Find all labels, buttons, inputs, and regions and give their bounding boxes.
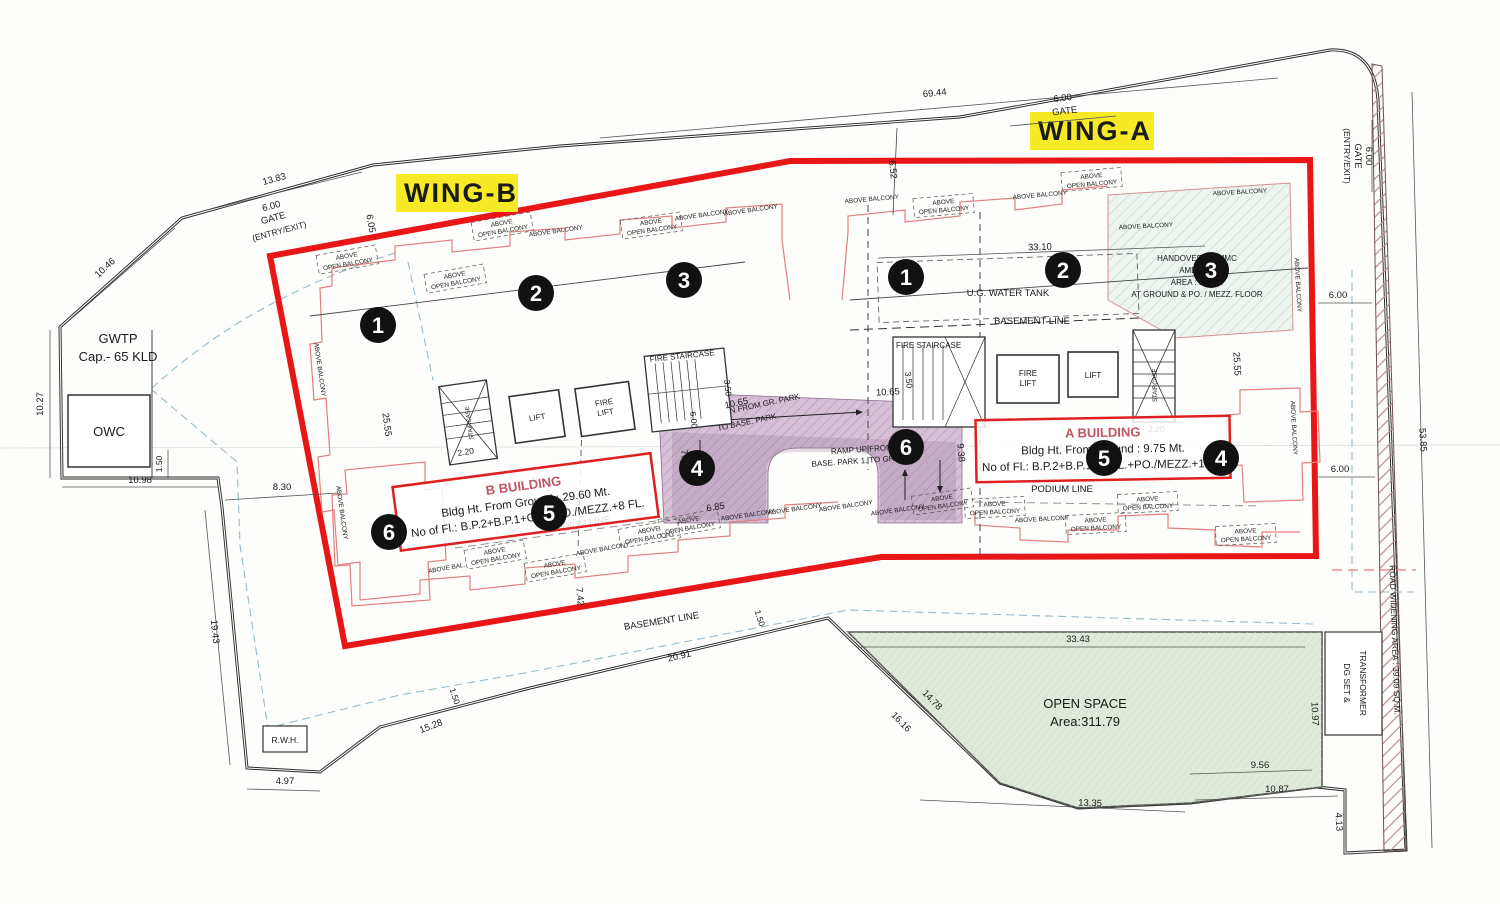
- svg-text:OPEN BALCONY: OPEN BALCONY: [1221, 535, 1272, 545]
- svg-text:ABOVE BALCONY: ABOVE BALCONY: [312, 342, 327, 398]
- wing-a-label: WING-A: [1030, 112, 1154, 150]
- svg-text:6: 6: [900, 435, 912, 460]
- a-building-title: A BUILDING: [1065, 424, 1141, 440]
- balcony-label: ABOVEOPEN BALCONY: [316, 245, 378, 274]
- site-plan: ROAD WIDENING AREA : 39.09 SQ.M. OPEN SP…: [0, 0, 1500, 904]
- svg-text:5: 5: [1098, 446, 1110, 471]
- balcony-label: ABOVEOPEN BALCONY: [964, 496, 1025, 518]
- svg-text:3: 3: [1205, 258, 1217, 283]
- handover-line4: AT GROUND & PO. / MEZZ. FLOOR: [1131, 290, 1262, 299]
- dim-8-30: 8.30: [273, 482, 292, 493]
- dim-53-85: 53.85: [1416, 428, 1428, 452]
- basement-line-label-a: BASEMENT LINE: [994, 316, 1070, 327]
- dim-1-50-b: 1.50: [753, 609, 768, 628]
- marker-b-1: 1: [360, 307, 396, 343]
- svg-text:ABOVE: ABOVE: [1084, 516, 1106, 524]
- dim-7-70: 7.70: [678, 449, 691, 469]
- svg-text:OPEN BALCONY: OPEN BALCONY: [1123, 503, 1174, 513]
- podium-line-label-a: PODIUM LINE: [1031, 484, 1093, 495]
- dim-10-65-right: 10.65: [876, 386, 900, 398]
- svg-text:3: 3: [678, 268, 690, 293]
- svg-text:ABOVE BALCONY: ABOVE BALCONY: [1293, 258, 1303, 313]
- marker-a-5: 5: [1086, 440, 1122, 476]
- dim-10-27: 10.27: [35, 392, 46, 416]
- marker-b-2: 2: [518, 275, 554, 311]
- open-space-area-value: Area:311.79: [1050, 714, 1120, 729]
- lift-wing-a: LIFT: [1068, 352, 1118, 397]
- balcony-label: ABOVE BALCONY: [575, 541, 630, 557]
- gwtp-capacity: Cap.- 65 KLD: [79, 349, 158, 364]
- fire-lift-wing-b: FIRE LIFT: [575, 381, 635, 436]
- dim-20-91: 20.91: [667, 649, 693, 665]
- dg-set-label-2: TRANSFORMER: [1358, 650, 1368, 716]
- marker-a-2: 2: [1045, 252, 1081, 288]
- svg-text:ABOVE BALCONY: ABOVE BALCONY: [818, 499, 874, 514]
- entry-exit-label-right: (ENTRY/EXIT): [1342, 128, 1352, 184]
- balcony-label: ABOVEOPEN BALCONY: [1065, 512, 1126, 534]
- dg-set-label-1: DG SET &: [1342, 663, 1352, 703]
- svg-text:4: 4: [1215, 446, 1228, 471]
- fire-lift-wing-a: FIRE LIFT: [997, 355, 1059, 403]
- dim-25-55-a: 25.55: [1230, 352, 1242, 376]
- balcony-label: ABOVE BALCONY: [844, 194, 899, 206]
- dim-6-00-right-2: 6.00: [1331, 464, 1350, 475]
- balcony-label: ABOVE BALCONY: [674, 208, 730, 223]
- svg-text:2: 2: [1057, 258, 1069, 283]
- svg-text:ABOVE: ABOVE: [983, 500, 1005, 508]
- svg-text:5: 5: [543, 501, 555, 526]
- balcony-label: ABOVE BAL.: [428, 562, 467, 575]
- dim-6-00-gate-a: 6.00: [1053, 92, 1073, 105]
- dim-69-44: 69.44: [922, 87, 947, 100]
- dim-10-46: 10.46: [93, 256, 118, 280]
- dg-set-transformer-box: DG SET & TRANSFORMER: [1325, 632, 1382, 735]
- dim-6-52: 6.52: [886, 160, 899, 180]
- open-space-label: OPEN SPACE: [1043, 696, 1127, 711]
- balcony-label: ABOVE BALCONY: [312, 342, 327, 398]
- svg-text:2: 2: [530, 281, 542, 306]
- balcony-label: ABOVEOPEN BALCONY: [424, 264, 486, 293]
- gwtp-area: GWTP Cap.- 65 KLD OWC: [68, 330, 157, 478]
- dim-1-50-owc: 1.50: [154, 455, 164, 472]
- basement-line-label-bottom: BASEMENT LINE: [623, 610, 700, 633]
- balcony-label: ABOVE BALCONY: [1293, 258, 1303, 313]
- svg-text:1: 1: [900, 265, 912, 290]
- svg-text:ABOVE BAL.: ABOVE BAL.: [428, 562, 467, 575]
- dim-10-87: 10.87: [1265, 784, 1289, 795]
- dim-3-50-a: 3.50: [903, 371, 915, 389]
- owc-label: OWC: [93, 424, 125, 439]
- balcony-label: ABOVEOPEN BALCONY: [464, 540, 526, 569]
- balcony-label: ABOVE BALCONY: [1015, 515, 1070, 525]
- dim-4-13: 4.13: [1333, 812, 1345, 831]
- svg-text:ABOVE BALCONY: ABOVE BALCONY: [1015, 515, 1070, 525]
- svg-text:OPEN BALCONY: OPEN BALCONY: [1071, 524, 1122, 534]
- svg-text:6: 6: [383, 520, 395, 545]
- dim-13-83: 13.83: [261, 171, 287, 188]
- svg-text:ABOVE BALCONY: ABOVE BALCONY: [1012, 190, 1067, 202]
- wing-b-label-text: WING-B: [404, 178, 518, 208]
- balcony-label: ABOVEOPEN BALCONY: [913, 193, 974, 217]
- balcony-label: ABOVEOPEN BALCONY: [620, 212, 682, 239]
- wing-b-label: WING-B: [396, 174, 518, 212]
- svg-text:ABOVE BALCONY: ABOVE BALCONY: [844, 194, 899, 206]
- svg-text:OPEN BALCONY: OPEN BALCONY: [970, 508, 1021, 518]
- fire-lift-wing-a-label-2: LIFT: [1020, 379, 1037, 388]
- marker-a-6: 6: [888, 429, 924, 465]
- svg-text:ABOVE BALCONY: ABOVE BALCONY: [723, 203, 779, 218]
- dim-19-43: 19.43: [208, 619, 221, 644]
- rwh-label: R.W.H.: [272, 735, 299, 745]
- balcony-label: ABOVEOPEN BALCONY: [1117, 491, 1178, 513]
- marker-a-4: 4: [1203, 440, 1239, 476]
- fire-staircase-wing-a-label: FIRE STAIRCASE: [896, 341, 961, 350]
- dim-33-43: 33.43: [1066, 634, 1090, 645]
- marker-a-1: 1: [888, 259, 924, 295]
- svg-text:ABOVE BALCONY: ABOVE BALCONY: [575, 541, 630, 557]
- dim-33-10: 33.10: [1028, 242, 1052, 254]
- dim-13-35: 13.35: [1078, 798, 1102, 810]
- dim-25-55-b: 25.55: [379, 412, 393, 437]
- svg-text:OPEN BALCONY: OPEN BALCONY: [1067, 179, 1119, 190]
- dim-3-50-b: 3.50: [722, 379, 734, 397]
- svg-text:OPEN BALCONY: OPEN BALCONY: [919, 205, 971, 216]
- svg-text:ABOVE BALCONY: ABOVE BALCONY: [674, 208, 730, 223]
- gwtp-label: GWTP: [99, 331, 138, 346]
- staircase-wing-a-label: STAIRCASE: [1153, 368, 1159, 402]
- balcony-label: ABOVEOPEN BALCONY: [1061, 167, 1122, 191]
- fire-staircase-wing-a: FIRE STAIRCASE 3.50: [893, 337, 985, 427]
- dim-16-16: 16.16: [889, 710, 913, 735]
- dim-10-98: 10.98: [128, 475, 152, 486]
- dim-1-50-a: 1.50: [448, 687, 463, 706]
- ug-water-tank-label: U.G. WATER TANK: [967, 288, 1050, 299]
- balcony-label: ABOVE BALCONY: [723, 203, 779, 218]
- svg-text:ABOVE: ABOVE: [1136, 495, 1158, 503]
- balcony-label: ABOVEOPEN BALCONY: [1215, 523, 1276, 545]
- gate-label-right: GATE: [1352, 143, 1363, 168]
- marker-b-6: 6: [371, 514, 407, 550]
- balcony-label: ABOVE BALCONY: [528, 224, 584, 239]
- fire-lift-wing-a-label-1: FIRE: [1019, 369, 1037, 378]
- fire-staircase-wing-b: FIRE STAIRCASE 3.50 6.00: [644, 348, 733, 432]
- marker-b-3: 3: [666, 262, 702, 298]
- dim-9-56: 9.56: [1251, 760, 1270, 771]
- lift-wing-b: LIFT: [509, 390, 565, 444]
- dim-6-05: 6.05: [363, 214, 377, 234]
- wing-a-label-text: WING-A: [1038, 116, 1152, 146]
- balcony-label: ABOVE BALCONY: [1012, 190, 1067, 202]
- dim-10-97: 10.97: [1308, 702, 1320, 726]
- dim-6-00-firestair-b: 6.00: [688, 411, 700, 429]
- open-space-area: OPEN SPACE Area:311.79: [848, 632, 1322, 808]
- svg-text:ABOVE BALCONY: ABOVE BALCONY: [1289, 401, 1299, 456]
- svg-text:ABOVE BALCONY: ABOVE BALCONY: [528, 224, 584, 239]
- dim-15-28: 15.28: [418, 717, 444, 736]
- rwh-box: R.W.H.: [263, 726, 307, 752]
- b-building-info-box: B BUILDING Bldg Ht. From Ground : 29.60 …: [393, 453, 659, 550]
- svg-text:1: 1: [372, 313, 384, 338]
- svg-text:ABOVE: ABOVE: [1234, 527, 1256, 535]
- marker-b-5: 5: [531, 495, 567, 531]
- dim-7-42: 7.42: [573, 587, 586, 607]
- marker-a-3: 3: [1193, 252, 1229, 288]
- dim-4-97: 4.97: [276, 776, 295, 787]
- svg-text:4: 4: [691, 456, 704, 481]
- lift-wing-a-label: LIFT: [1085, 371, 1102, 380]
- dim-6-00-gate-right: 6.00: [1363, 147, 1374, 166]
- dim-9-38: 9.38: [954, 443, 967, 462]
- balcony-label: ABOVE BALCONY: [818, 499, 874, 514]
- site-plan-drawing: ROAD WIDENING AREA : 39.09 SQ.M. OPEN SP…: [0, 0, 1500, 904]
- balcony-label: ABOVE BALCONY: [1289, 401, 1299, 456]
- dim-6-00-right-1: 6.00: [1329, 290, 1348, 301]
